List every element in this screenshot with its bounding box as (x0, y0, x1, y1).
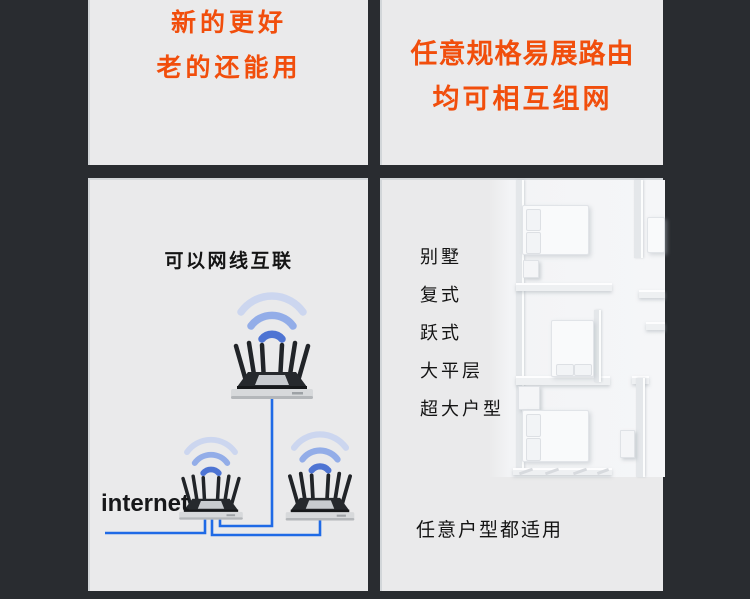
nightstand (523, 260, 539, 278)
panel-top-right: 任意规格易展路由 均可相互组网 (380, 0, 663, 165)
wall (634, 180, 643, 258)
internet-label: internet (101, 490, 189, 518)
panel-house-types: 别墅 复式 跃式 大平层 超大户型 任意户型都适用 (380, 178, 663, 591)
house-type-list: 别墅 复式 跃式 大平层 超大户型 (420, 248, 504, 438)
wall (516, 283, 612, 291)
wardrobe (518, 386, 540, 410)
wifi-icon (294, 434, 346, 470)
slogan-line: 均可相互组网 (382, 77, 663, 116)
house-type-item: 大平层 (420, 362, 504, 380)
router-right (278, 426, 362, 523)
wall (646, 322, 665, 330)
panel-footer-text: 任意户型都适用 (416, 515, 563, 542)
pillow (556, 364, 574, 376)
router-logo (227, 514, 236, 516)
bed (522, 205, 589, 255)
pillow (526, 414, 541, 437)
router-logo (337, 515, 346, 517)
panel-top-left: 新的更好 老的还能用 (88, 0, 368, 165)
wall (636, 378, 645, 477)
floorplan-illustration (489, 180, 665, 477)
wall (594, 310, 601, 382)
pillow (526, 209, 541, 231)
router-top (222, 286, 322, 402)
slogan-line: 新的更好 (90, 3, 368, 39)
slogan-line: 任意规格易展路由 (382, 32, 663, 71)
house-type-item: 复式 (420, 286, 504, 304)
wifi-icon (241, 296, 303, 339)
house-type-item: 超大户型 (420, 400, 504, 418)
house-type-item: 跃式 (420, 324, 504, 342)
pillow (574, 364, 592, 376)
bed (647, 217, 665, 253)
pillow (526, 438, 541, 461)
wall (639, 290, 665, 298)
wifi-icon (187, 440, 235, 473)
cabinet (620, 430, 635, 458)
house-type-item: 别墅 (420, 248, 504, 266)
slogan-line: 老的还能用 (90, 48, 368, 84)
bed (522, 410, 589, 462)
promo-image: 新的更好 老的还能用 任意规格易展路由 均可相互组网 可以网线互联 (0, 0, 750, 599)
bed (551, 320, 594, 377)
router-logo (292, 392, 303, 395)
pillow (526, 232, 541, 254)
panel-wired-mesh-diagram: 可以网线互联 (88, 178, 368, 591)
